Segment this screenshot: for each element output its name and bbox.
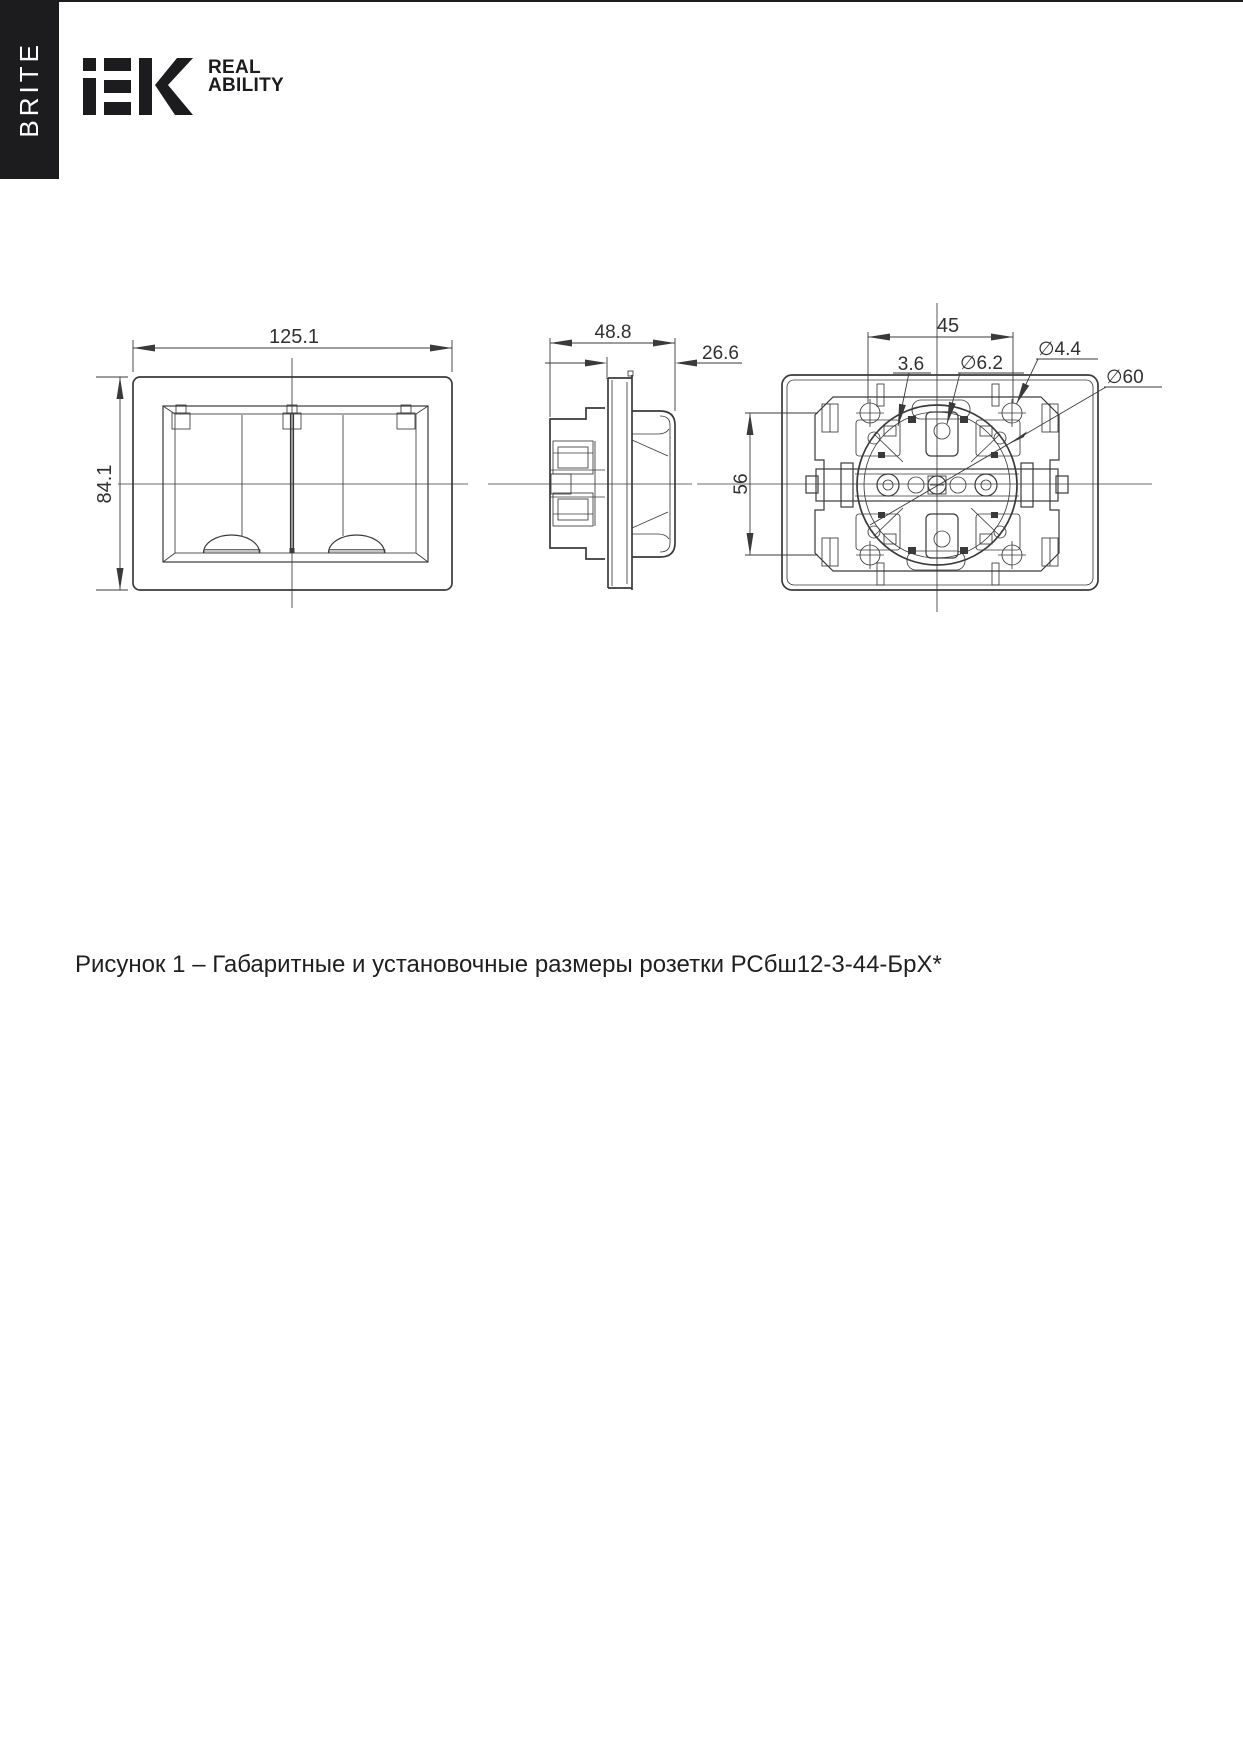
dim-label-front-width: 125.1 bbox=[269, 326, 319, 348]
dim-front-depth: 26.6 bbox=[545, 343, 742, 379]
document-page: BRITE REAL ABILITY bbox=[0, 0, 1243, 1742]
dim-label-box-diameter: ∅60 bbox=[1106, 367, 1144, 388]
dim-front-width: 125.1 bbox=[133, 326, 452, 372]
figure-caption: Рисунок 1 – Габаритные и установочные ра… bbox=[75, 951, 942, 979]
dim-label-slot-width: 3.6 bbox=[898, 354, 924, 375]
dim-label-screw-spacing: 45 bbox=[937, 315, 959, 337]
dim-front-height: 84.1 bbox=[94, 377, 128, 590]
back-view bbox=[697, 303, 1152, 612]
dim-mount-hole-diameter: ∅4.4 bbox=[1017, 339, 1099, 404]
technical-drawing: 125.1 84.1 bbox=[0, 0, 1243, 700]
front-view bbox=[118, 358, 468, 608]
dim-label-mount-hole-diameter: ∅4.4 bbox=[1038, 339, 1081, 360]
dim-slot-width: 3.6 bbox=[893, 354, 931, 426]
dim-label-front-height: 84.1 bbox=[94, 465, 116, 504]
dim-label-front-depth: 26.6 bbox=[702, 343, 739, 364]
side-view bbox=[488, 371, 692, 590]
dim-label-tab-hole-diameter: ∅6.2 bbox=[960, 353, 1003, 374]
dim-label-vertical-spacing: 56 bbox=[731, 473, 752, 494]
dim-total-depth: 48.8 bbox=[550, 322, 675, 417]
dim-label-total-depth: 48.8 bbox=[595, 322, 632, 343]
